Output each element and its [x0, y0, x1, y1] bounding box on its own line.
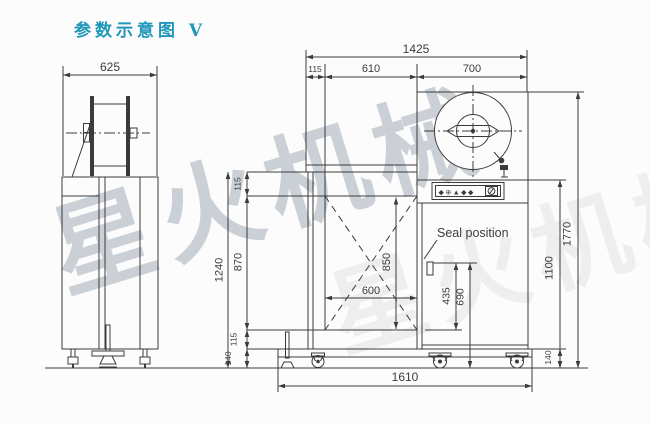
caster-small	[312, 353, 325, 368]
dim-label-850: 850	[381, 253, 393, 271]
base-and-casters	[278, 332, 532, 368]
dim-label-700: 700	[463, 63, 481, 75]
drawing-page: 星火机械 星火机械 参数示意图 V	[0, 0, 650, 424]
dim-label-1100: 1100	[544, 256, 556, 280]
dim-side-width: 625	[63, 60, 157, 176]
dim-label-1610: 1610	[392, 370, 419, 384]
caster-mid	[429, 353, 451, 368]
dim-label-625: 625	[100, 60, 120, 74]
side-reel-bracket	[66, 96, 150, 177]
dim-label-1770: 1770	[562, 222, 574, 246]
dim-label-690: 690	[455, 288, 467, 306]
dim-label-1240: 1240	[214, 258, 226, 282]
dim-label-1425: 1425	[403, 42, 430, 56]
side-cabinet	[62, 177, 158, 349]
seal-position-label: Seal position	[437, 226, 509, 240]
dim-label-140-right: 140	[543, 350, 553, 364]
control-panel-icons: ◆⊕▲◆◆	[439, 190, 475, 197]
leveling-foot	[286, 332, 290, 358]
seal-head	[427, 262, 433, 275]
arch-aperture-diagonals	[325, 196, 417, 330]
dim-label-435: 435	[441, 287, 453, 305]
side-view: 625	[62, 60, 158, 368]
side-feet	[68, 325, 150, 368]
dim-label-610: 610	[362, 63, 380, 75]
dim-label-115-beam: 115	[233, 177, 243, 191]
machine-dimension-drawing: 625 ◆⊕▲◆◆	[0, 0, 650, 424]
gauge-icon	[486, 187, 498, 196]
caster-right	[506, 353, 528, 368]
dim-label-115-top: 115	[308, 64, 322, 74]
dim-label-140-left: 140	[223, 351, 233, 365]
dim-label-870: 870	[233, 253, 245, 271]
strap-reel-front	[424, 85, 522, 178]
tension-knob-icon	[499, 158, 505, 164]
dim-label-600: 600	[362, 285, 380, 297]
front-view: ◆⊕▲◆◆	[214, 42, 585, 392]
strap-guide-fitting	[500, 165, 508, 170]
seal-leader-line	[424, 240, 437, 259]
arch-frame	[306, 64, 417, 349]
dim-label-115-base: 115	[229, 332, 239, 346]
